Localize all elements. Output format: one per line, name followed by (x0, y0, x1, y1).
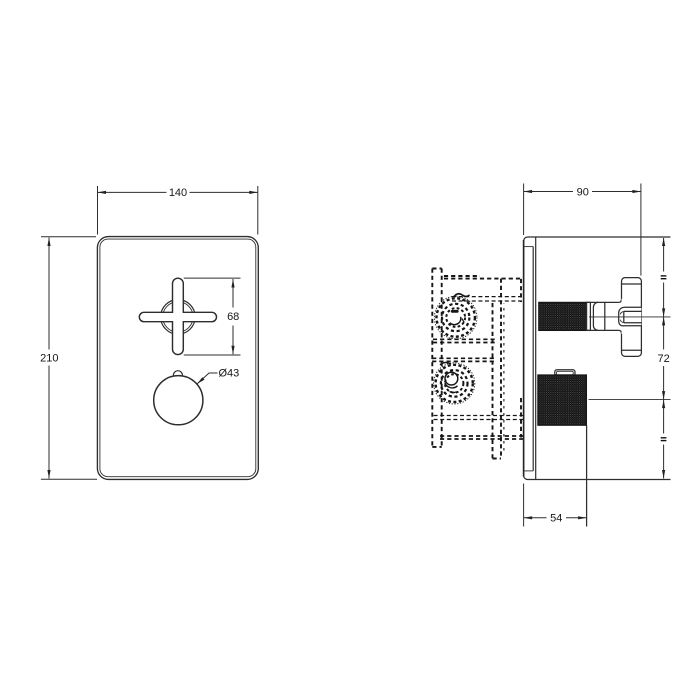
svg-text:54: 54 (550, 513, 562, 525)
svg-text:72: 72 (657, 353, 669, 365)
svg-text:68: 68 (227, 311, 239, 323)
svg-text:90: 90 (577, 186, 589, 198)
svg-text:140: 140 (169, 187, 187, 199)
svg-text:210: 210 (40, 352, 58, 364)
svg-text:Ø43: Ø43 (219, 368, 240, 380)
